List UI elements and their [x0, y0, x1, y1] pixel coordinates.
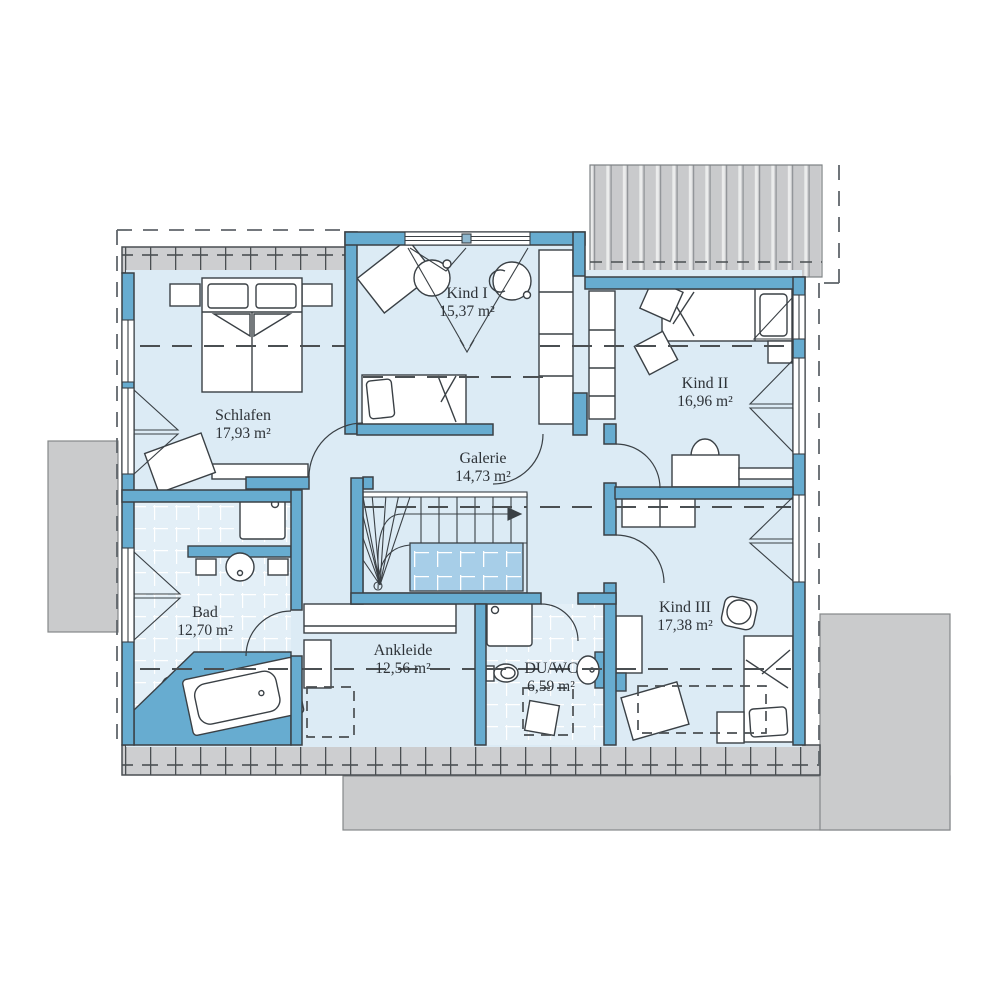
wardrobe — [304, 604, 456, 633]
schlafen-window — [122, 320, 134, 382]
sideboard — [739, 468, 793, 479]
room-label-galerie: Galerie — [459, 450, 506, 467]
ankleide-top-wall — [351, 593, 541, 604]
bad-right-wall-lower — [291, 656, 302, 745]
room-label-kind1: Kind I — [446, 285, 487, 302]
bottom-eave-band — [122, 745, 820, 775]
room-area-kind2: 16,96 m² — [677, 393, 733, 410]
room-area-kind3: 17,38 m² — [657, 617, 713, 634]
dormer-left-wall — [345, 232, 357, 434]
schlafen-bottom-wall-stub — [363, 477, 373, 489]
bad-right-wall-upper — [291, 490, 302, 610]
room-area-schlafen: 17,93 m² — [215, 425, 271, 442]
wardrobe — [616, 616, 642, 673]
striped-roof-area — [590, 165, 822, 277]
kind3-left-wall-lower — [604, 583, 616, 745]
room-label-kind2: Kind II — [682, 375, 729, 392]
nightstand — [170, 284, 200, 306]
room-label-ankleide: Ankleide — [374, 642, 433, 659]
room-area-kind1: 15,37 m² — [439, 303, 495, 320]
single-bed — [362, 375, 466, 425]
round-chair — [720, 595, 759, 631]
wardrobe — [304, 640, 331, 688]
ankleide-duwc-wall — [475, 604, 486, 745]
top-eave-band — [122, 247, 345, 273]
stair-balustrade — [363, 492, 527, 497]
left-roof-area — [48, 441, 118, 632]
stair-left-wall — [351, 478, 363, 604]
nightstand — [302, 284, 332, 306]
room-label-bad: Bad — [192, 604, 218, 621]
room-area-galerie: 14,73 m² — [455, 468, 511, 485]
floorplan-page: Schlafen 17,93 m² Kind I 15,37 m² Kind I… — [0, 0, 1000, 1000]
room-area-duwc: 6,59 m² — [527, 678, 575, 695]
floorplan-drawing: Schlafen 17,93 m² Kind I 15,37 m² Kind I… — [0, 0, 1000, 1000]
bedside-shelf — [768, 341, 792, 363]
shower — [487, 602, 532, 646]
kind2-top-wall — [585, 277, 805, 289]
kind2-left-wall — [604, 424, 616, 444]
wardrobe-shelves — [589, 291, 615, 419]
kind1-bottom-wall — [357, 424, 493, 435]
room-label-duwc: DU/WC — [524, 660, 577, 677]
room-label-kind3: Kind III — [659, 599, 711, 616]
desk — [672, 455, 739, 487]
dormer-right-wall — [573, 232, 585, 276]
single-bed — [744, 636, 793, 742]
sideboard — [622, 498, 695, 527]
stair-landing — [410, 543, 523, 591]
schlafen-bottom-wall — [246, 477, 309, 489]
kind1-kind2-wall — [573, 393, 587, 435]
kind2-bottom-wall — [615, 487, 793, 499]
toilet — [486, 664, 518, 682]
kind3-left-wall-upper — [604, 483, 616, 535]
right-roof-area — [820, 614, 950, 830]
shower — [240, 497, 285, 539]
wardrobe-shelves — [539, 250, 573, 424]
double-bed — [202, 278, 302, 392]
stool — [525, 701, 560, 736]
room-area-ankleide: 12,56 m² — [375, 660, 431, 677]
duwc-top-wall-stub — [578, 593, 616, 604]
chest — [717, 712, 744, 743]
room-area-bad: 12,70 m² — [177, 622, 233, 639]
dormer-window — [405, 232, 530, 245]
room-label-schlafen: Schlafen — [215, 407, 271, 424]
bad-top-wall — [122, 490, 297, 502]
